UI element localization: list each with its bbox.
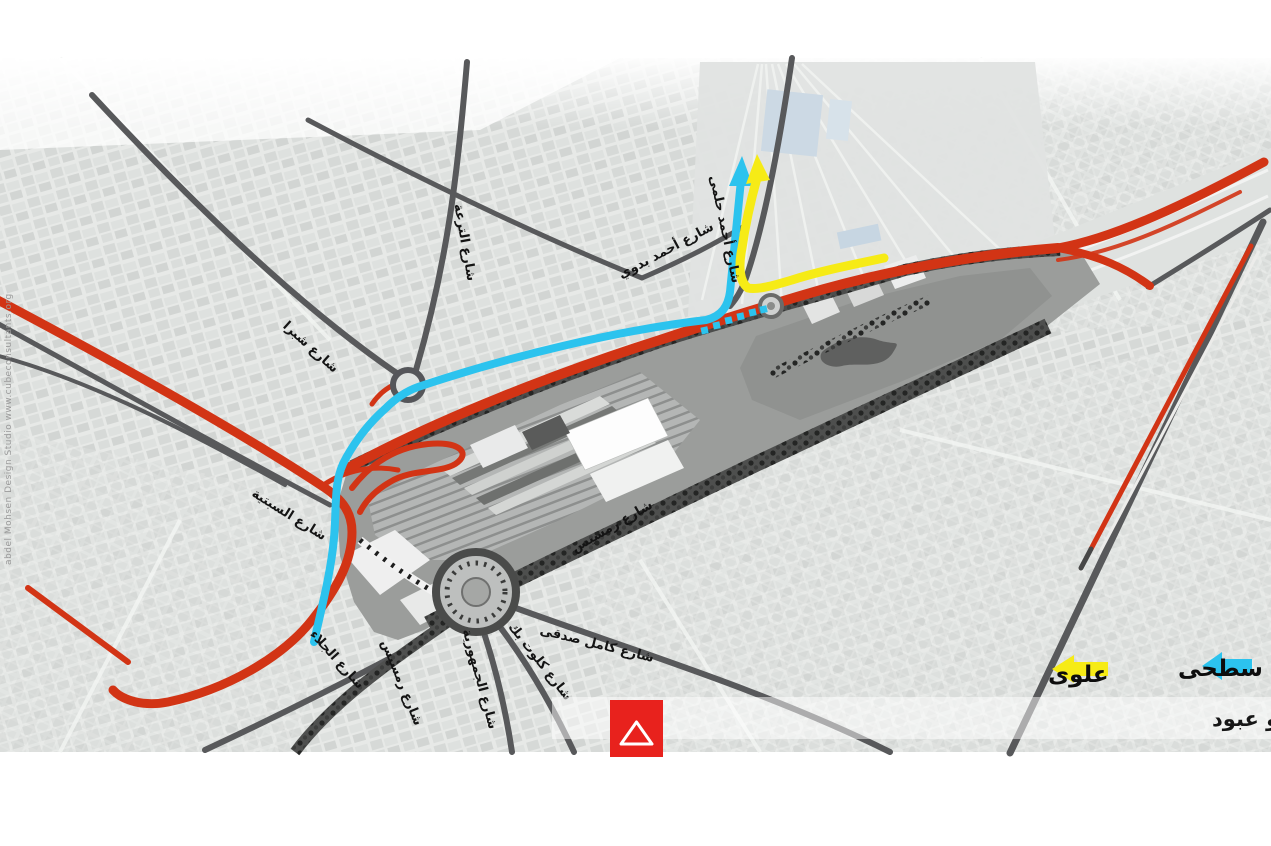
legend-surface-label: سطحى xyxy=(1178,656,1263,682)
watermark-text: abdel Mohsen Design Studio www.cubeconsu… xyxy=(4,293,14,565)
studio-logo xyxy=(610,700,663,757)
legend-elevated-label: علوى xyxy=(1048,662,1109,688)
traffic-movement-map: شارع شبرا شارع الترعة شارع أحمد بدوي شار… xyxy=(0,0,1271,846)
map-canvas: شارع شبرا شارع الترعة شارع أحمد بدوي شار… xyxy=(0,0,1271,846)
ramses-square-roundabout xyxy=(436,552,516,632)
caption-text: حركة السيارات القادمة من غمرة و ميدان رم… xyxy=(1212,707,1271,731)
